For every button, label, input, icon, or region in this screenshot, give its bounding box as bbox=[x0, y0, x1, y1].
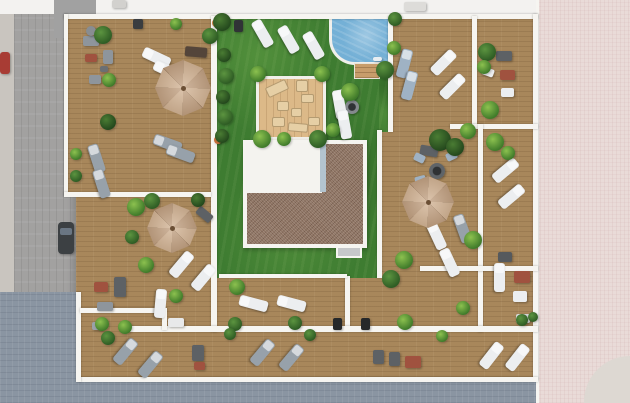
lounger-pillow bbox=[203, 264, 215, 276]
parapet-wall-15 bbox=[80, 308, 166, 313]
table-red-bottom-left bbox=[94, 282, 108, 292]
cushion-7 bbox=[288, 122, 309, 133]
lounger-pillow bbox=[495, 264, 503, 272]
umbrella-1 bbox=[147, 203, 197, 253]
rooftop-box-b bbox=[404, 2, 426, 11]
plant-49 bbox=[516, 314, 528, 326]
lounger-pillow bbox=[303, 32, 314, 43]
plant-37 bbox=[144, 193, 160, 209]
lounger-pillow bbox=[262, 339, 274, 351]
lounger-pillow bbox=[517, 344, 529, 356]
table-red-top-right bbox=[500, 70, 515, 80]
parapet-wall-6 bbox=[64, 192, 211, 197]
plant-27 bbox=[395, 251, 413, 269]
plant-17 bbox=[387, 41, 401, 55]
umbrella-pole bbox=[170, 226, 175, 231]
parapet-wall-11 bbox=[478, 124, 483, 332]
lounger-pillow bbox=[166, 145, 176, 156]
lounger-pillow bbox=[406, 71, 416, 81]
lounger-pillow bbox=[338, 110, 348, 119]
picnic-table bbox=[185, 46, 208, 58]
plant-52 bbox=[456, 301, 470, 315]
table-red-balcony-b bbox=[405, 356, 421, 368]
plant-12 bbox=[309, 130, 327, 148]
lounger-pillow bbox=[252, 20, 263, 31]
plant-29 bbox=[382, 270, 400, 288]
plant-47 bbox=[304, 329, 316, 341]
lounger-pillow bbox=[506, 158, 518, 170]
parapet-wall-7 bbox=[377, 130, 382, 278]
lounger-pillow bbox=[512, 184, 524, 196]
lounger-pillow bbox=[440, 248, 451, 259]
sun-lounger-31 bbox=[494, 263, 505, 292]
cushion-5 bbox=[291, 108, 302, 117]
plant-35 bbox=[169, 289, 183, 303]
lounger-pillow bbox=[278, 26, 289, 37]
parapet-wall-2 bbox=[78, 377, 538, 382]
lounger-pillow bbox=[125, 338, 137, 350]
cushion-4 bbox=[277, 101, 289, 111]
roof-core-white bbox=[246, 143, 322, 193]
bench-balcony-c bbox=[389, 352, 400, 366]
plant-1 bbox=[102, 73, 116, 87]
umbrella-pole bbox=[181, 86, 186, 91]
plant-46 bbox=[224, 328, 236, 340]
plant-3 bbox=[217, 48, 231, 62]
plant-30 bbox=[397, 314, 413, 330]
plant-39 bbox=[125, 230, 139, 244]
pool-ladder bbox=[373, 57, 382, 61]
umbrella-pole bbox=[426, 200, 431, 205]
parapet-wall-13 bbox=[219, 274, 347, 278]
pavement-right bbox=[536, 0, 630, 403]
plant-13 bbox=[277, 132, 291, 146]
plant-11 bbox=[253, 130, 271, 148]
plant-5 bbox=[216, 90, 230, 104]
wall-table-white-a bbox=[168, 318, 184, 327]
lounger-pillow bbox=[291, 344, 303, 356]
chair-white-top-right-b bbox=[501, 88, 514, 97]
plant-21 bbox=[481, 101, 499, 119]
table-red-bottom-right bbox=[514, 271, 530, 283]
bench-bottom-left bbox=[97, 302, 113, 311]
ottoman-red-top-left bbox=[85, 54, 97, 62]
plant-42 bbox=[70, 148, 82, 160]
lounger-pillow bbox=[93, 169, 103, 179]
plant-22 bbox=[460, 123, 476, 139]
plant-44 bbox=[101, 331, 115, 345]
chair-top-left bbox=[89, 75, 101, 84]
car-windshield bbox=[60, 228, 73, 235]
plant-15 bbox=[341, 83, 359, 101]
umbrella-2 bbox=[402, 176, 454, 228]
plant-14 bbox=[326, 123, 340, 137]
lounger-pillow bbox=[150, 351, 162, 363]
pouf-bottom-right bbox=[513, 291, 527, 302]
plant-0 bbox=[94, 26, 112, 44]
cushion-6 bbox=[272, 117, 285, 127]
plant-50 bbox=[528, 312, 538, 322]
lounger-pillow bbox=[454, 214, 465, 224]
plant-43 bbox=[70, 170, 82, 182]
plant-38 bbox=[191, 193, 205, 207]
lounger-pillow bbox=[153, 135, 163, 146]
lounger-pillow bbox=[156, 290, 165, 299]
scene bbox=[0, 0, 630, 403]
plant-26 bbox=[501, 146, 515, 160]
cushion-8 bbox=[308, 117, 320, 126]
parapet-wall-3 bbox=[76, 292, 81, 382]
plant-4 bbox=[218, 68, 234, 84]
plant-7 bbox=[215, 129, 229, 143]
lounger-pillow bbox=[401, 49, 411, 59]
plant-45 bbox=[118, 320, 132, 334]
plant-51 bbox=[170, 18, 182, 30]
plant-2 bbox=[202, 28, 218, 44]
plant-31 bbox=[229, 279, 245, 295]
plant-24 bbox=[446, 138, 464, 156]
sofa-top-right bbox=[496, 51, 512, 61]
plant-6 bbox=[217, 109, 233, 125]
bbq-grill-b bbox=[361, 318, 370, 330]
sun-lounger-30 bbox=[153, 288, 166, 318]
plant-33 bbox=[288, 316, 302, 330]
lounger-pillow bbox=[444, 50, 456, 62]
roof-core-skylight bbox=[320, 144, 326, 192]
coffee-table-top-left bbox=[100, 66, 108, 72]
cushion-2 bbox=[296, 80, 308, 92]
rooftop-box-a bbox=[112, 0, 126, 8]
grill-table-right bbox=[498, 252, 512, 262]
plant-36 bbox=[127, 198, 145, 216]
plant-9 bbox=[250, 66, 266, 82]
lounger-pillow bbox=[491, 342, 503, 354]
cushion-3 bbox=[301, 94, 314, 103]
street-corner-bottom-left bbox=[0, 292, 76, 403]
car-red bbox=[0, 52, 10, 74]
table-red-balcony-a bbox=[194, 362, 205, 370]
plant-10 bbox=[314, 66, 330, 82]
parapet-wall-12 bbox=[345, 276, 350, 330]
parapet-wall-9 bbox=[472, 16, 477, 126]
lounger-pillow bbox=[239, 296, 249, 306]
plant-41 bbox=[100, 114, 116, 130]
lounger-pillow bbox=[277, 296, 287, 306]
plant-28 bbox=[464, 231, 482, 249]
sofa-top-left-b bbox=[103, 50, 113, 64]
plant-34 bbox=[95, 317, 109, 331]
bench-balcony-b bbox=[373, 350, 384, 364]
pool bbox=[329, 15, 392, 65]
parapet-wall-5 bbox=[211, 16, 217, 332]
lounger-pillow bbox=[453, 74, 465, 86]
plant-19 bbox=[478, 43, 496, 61]
plant-8 bbox=[213, 13, 231, 31]
car-dark bbox=[58, 222, 74, 254]
plant-48 bbox=[436, 330, 448, 342]
bbq-grill-a bbox=[333, 318, 342, 330]
umbrella-0 bbox=[155, 60, 211, 116]
lounger-pillow bbox=[142, 48, 153, 59]
lounger-pillow bbox=[181, 251, 193, 263]
fire-table-se bbox=[429, 163, 445, 179]
plant-18 bbox=[388, 12, 402, 26]
wall-unit-dark-a bbox=[133, 19, 143, 29]
plant-16 bbox=[376, 61, 394, 79]
parapet-wall-4 bbox=[64, 14, 68, 196]
wall-unit-dark-b bbox=[234, 20, 243, 32]
bench-balcony-a bbox=[192, 345, 204, 361]
plant-40 bbox=[138, 257, 154, 273]
plant-20 bbox=[477, 60, 491, 74]
sofa-bottom-left bbox=[114, 277, 126, 297]
lounger-pillow bbox=[88, 144, 98, 154]
roof-vent-box bbox=[336, 246, 362, 258]
